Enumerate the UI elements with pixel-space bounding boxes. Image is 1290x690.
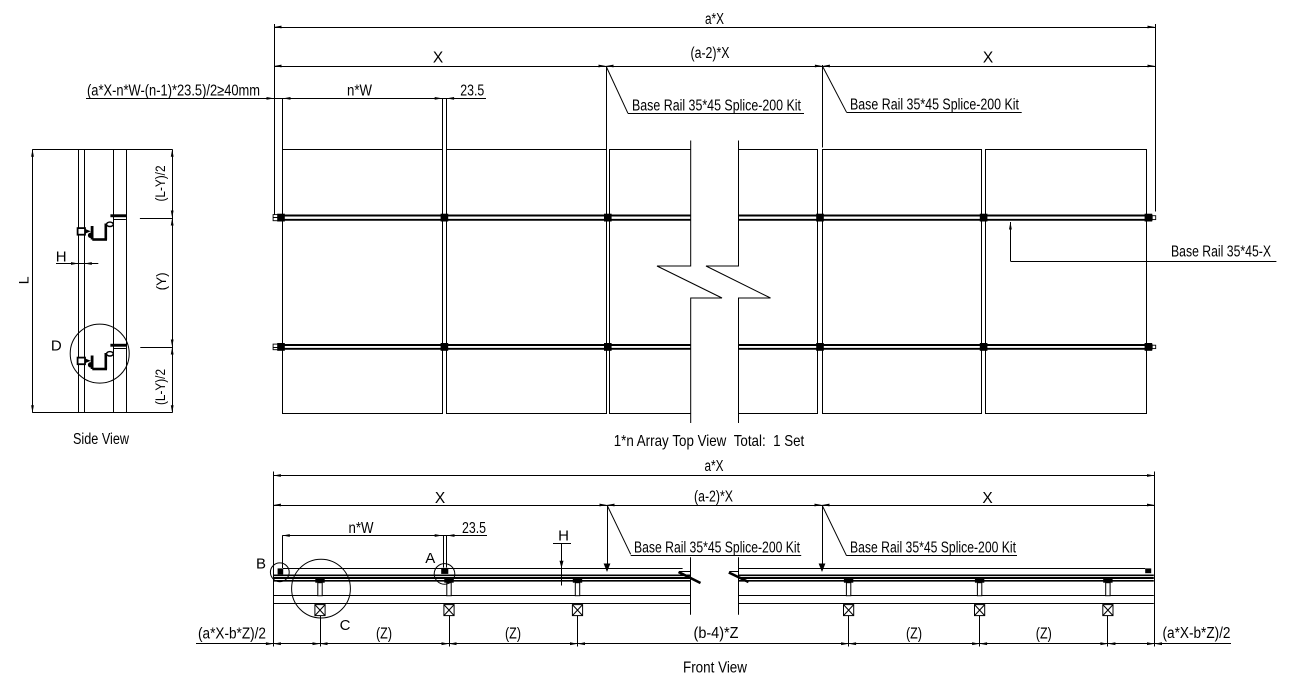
svg-text:(Z): (Z) bbox=[1036, 626, 1052, 643]
svg-text:X: X bbox=[982, 490, 993, 507]
svg-text:a*X: a*X bbox=[705, 458, 724, 475]
svg-text:1*n Array Top View Total: 1: 1*n Array Top View Total: 1 Set bbox=[614, 433, 805, 450]
svg-text:Base Rail 35*45 Splice-200 Kit: Base Rail 35*45 Splice-200 Kit bbox=[850, 97, 1020, 114]
svg-text:23.5: 23.5 bbox=[462, 520, 486, 537]
svg-text:(a*X-b*Z)/2: (a*X-b*Z)/2 bbox=[198, 626, 266, 643]
svg-text:(a-2)*X: (a-2)*X bbox=[691, 45, 731, 62]
svg-text:(Y): (Y) bbox=[154, 272, 169, 290]
svg-text:(a-2)*X: (a-2)*X bbox=[694, 489, 734, 506]
svg-text:X: X bbox=[435, 490, 446, 507]
svg-text:C: C bbox=[340, 617, 351, 634]
svg-text:Front View: Front View bbox=[683, 660, 748, 677]
svg-text:(L-Y)/2: (L-Y)/2 bbox=[153, 369, 168, 405]
svg-text:n*W: n*W bbox=[349, 520, 374, 537]
svg-text:Base Rail 35*45 Splice-200 Kit: Base Rail 35*45 Splice-200 Kit bbox=[634, 540, 801, 557]
svg-text:(a*X-b*Z)/2: (a*X-b*Z)/2 bbox=[1163, 625, 1231, 642]
svg-text:(Z): (Z) bbox=[376, 626, 392, 643]
svg-text:D: D bbox=[51, 338, 62, 355]
svg-text:(Z): (Z) bbox=[505, 626, 521, 643]
svg-text:n*W: n*W bbox=[347, 83, 372, 100]
svg-text:a*X: a*X bbox=[705, 11, 724, 28]
svg-text:(b-4)*Z: (b-4)*Z bbox=[694, 625, 739, 642]
svg-text:Base Rail 35*45 Splice-200 Kit: Base Rail 35*45 Splice-200 Kit bbox=[632, 98, 802, 115]
svg-text:Base Rail 35*45-X: Base Rail 35*45-X bbox=[1171, 244, 1272, 261]
svg-text:A: A bbox=[425, 550, 435, 567]
svg-text:B: B bbox=[256, 556, 266, 573]
svg-text:L: L bbox=[16, 276, 32, 284]
svg-text:(a*X-n*W-(n-1)*23.5)/2≥40mm: (a*X-n*W-(n-1)*23.5)/2≥40mm bbox=[87, 83, 260, 100]
svg-text:(Z): (Z) bbox=[906, 626, 922, 643]
svg-text:Base Rail 35*45 Splice-200 Kit: Base Rail 35*45 Splice-200 Kit bbox=[850, 540, 1017, 557]
svg-text:H: H bbox=[558, 528, 569, 545]
svg-text:Side View: Side View bbox=[73, 431, 130, 448]
svg-text:23.5: 23.5 bbox=[460, 83, 484, 100]
svg-text:H: H bbox=[56, 248, 67, 265]
svg-text:X: X bbox=[983, 50, 994, 67]
svg-text:(L-Y)/2: (L-Y)/2 bbox=[153, 166, 168, 202]
svg-text:X: X bbox=[433, 50, 444, 67]
